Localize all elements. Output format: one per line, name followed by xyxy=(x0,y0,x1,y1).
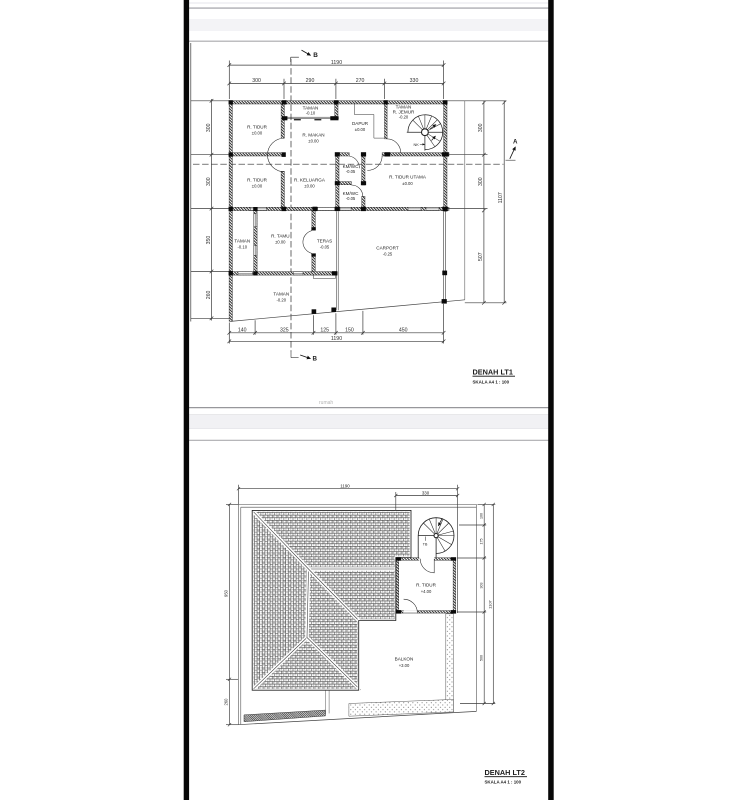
svg-text:TAMAN: TAMAN xyxy=(234,238,250,243)
svg-text:DAPUR: DAPUR xyxy=(352,121,369,126)
svg-text:NK: NK xyxy=(414,143,420,147)
svg-text:500: 500 xyxy=(479,655,483,661)
svg-text:SKALA A4 1 : 100: SKALA A4 1 : 100 xyxy=(485,779,522,784)
svg-text:±0.00: ±0.00 xyxy=(355,127,366,132)
svg-text:-0.20: -0.20 xyxy=(399,114,409,119)
svg-text:290: 290 xyxy=(306,78,315,84)
svg-text:±0.00: ±0.00 xyxy=(308,138,319,143)
svg-text:1107: 1107 xyxy=(498,192,504,203)
svg-text:325: 325 xyxy=(280,328,289,334)
svg-text:125: 125 xyxy=(320,328,329,334)
svg-text:-0.10: -0.10 xyxy=(306,111,316,116)
svg-text:350: 350 xyxy=(206,236,212,245)
svg-text:+4.00: +4.00 xyxy=(421,589,432,594)
svg-text:+3.00: +3.00 xyxy=(399,663,410,668)
svg-text:507: 507 xyxy=(478,252,484,261)
svg-text:100: 100 xyxy=(479,513,483,519)
svg-text:TAMAN: TAMAN xyxy=(273,291,289,296)
svg-text:270: 270 xyxy=(356,78,365,84)
svg-text:450: 450 xyxy=(399,328,408,334)
svg-text:B: B xyxy=(313,356,318,363)
svg-text:±0.00: ±0.00 xyxy=(252,183,263,188)
svg-text:1190: 1190 xyxy=(340,484,350,489)
svg-text:R. TAMU: R. TAMU xyxy=(271,233,289,238)
svg-text:TB: TB xyxy=(423,542,428,546)
svg-text:300: 300 xyxy=(252,78,261,84)
svg-text:R. MAKAN: R. MAKAN xyxy=(302,132,324,137)
svg-text:±0.00: ±0.00 xyxy=(275,239,286,244)
svg-text:175: 175 xyxy=(479,539,483,545)
svg-text:SKALA A4 1 : 100: SKALA A4 1 : 100 xyxy=(473,379,510,384)
svg-text:±0.00: ±0.00 xyxy=(252,130,263,135)
svg-text:300: 300 xyxy=(478,123,484,132)
svg-text:150: 150 xyxy=(345,328,354,334)
svg-text:TAMAN: TAMAN xyxy=(303,105,319,110)
svg-text:-0.05: -0.05 xyxy=(346,169,356,174)
svg-text:±0.00: ±0.00 xyxy=(304,183,315,188)
svg-text:260: 260 xyxy=(206,290,212,299)
svg-text:330: 330 xyxy=(410,78,419,84)
svg-text:R. TIDUR: R. TIDUR xyxy=(247,177,268,182)
svg-text:-0.20: -0.20 xyxy=(277,297,287,302)
svg-text:330: 330 xyxy=(422,490,430,495)
svg-text:BALKON: BALKON xyxy=(395,657,414,662)
svg-text:±0.00: ±0.00 xyxy=(402,181,413,186)
svg-text:DENAH LT2: DENAH LT2 xyxy=(485,768,525,777)
svg-text:260: 260 xyxy=(224,698,229,706)
svg-text:140: 140 xyxy=(238,328,247,334)
svg-text:TERAS: TERAS xyxy=(317,238,332,243)
svg-text:R. TIDUR UTAMA: R. TIDUR UTAMA xyxy=(389,175,427,180)
svg-text:300: 300 xyxy=(478,177,484,186)
svg-text:300: 300 xyxy=(206,123,212,132)
svg-text:-0.05: -0.05 xyxy=(346,196,356,201)
svg-text:300: 300 xyxy=(206,177,212,186)
svg-text:A: A xyxy=(513,139,518,146)
svg-text:303: 303 xyxy=(479,583,483,589)
svg-text:R. KELUARGA: R. KELUARGA xyxy=(294,177,326,182)
svg-text:1107: 1107 xyxy=(488,599,493,608)
svg-text:DENAH LT1: DENAH LT1 xyxy=(473,368,513,377)
svg-text:CARPORT: CARPORT xyxy=(376,245,399,250)
svg-text:R. TIDUR: R. TIDUR xyxy=(416,583,437,588)
svg-text:-0.10: -0.10 xyxy=(238,244,248,249)
svg-text:rumah: rumah xyxy=(319,400,333,406)
svg-text:1190: 1190 xyxy=(331,60,342,66)
svg-text:1190: 1190 xyxy=(331,336,342,342)
svg-text:-0.25: -0.25 xyxy=(383,251,393,256)
svg-text:950: 950 xyxy=(224,589,229,597)
svg-text:B: B xyxy=(313,52,318,59)
svg-text:-0.05: -0.05 xyxy=(320,244,330,249)
svg-text:R. TIDUR: R. TIDUR xyxy=(247,124,268,129)
